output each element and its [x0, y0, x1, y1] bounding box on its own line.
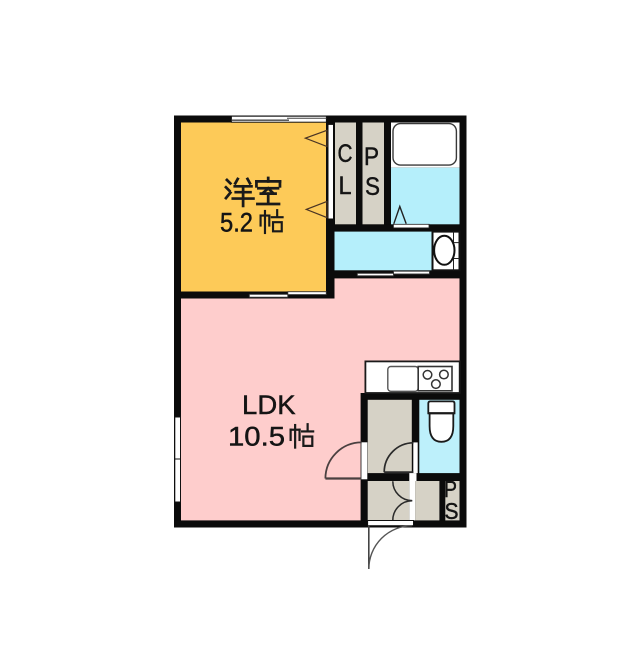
svg-text:S: S	[445, 498, 459, 524]
svg-text:C: C	[338, 140, 353, 168]
svg-text:P: P	[364, 143, 379, 171]
svg-text:5.2: 5.2	[220, 208, 253, 238]
svg-text:LDK: LDK	[242, 390, 296, 420]
svg-text:10.5: 10.5	[228, 422, 285, 452]
svg-text:L: L	[339, 172, 352, 200]
svg-text:S: S	[365, 173, 380, 201]
